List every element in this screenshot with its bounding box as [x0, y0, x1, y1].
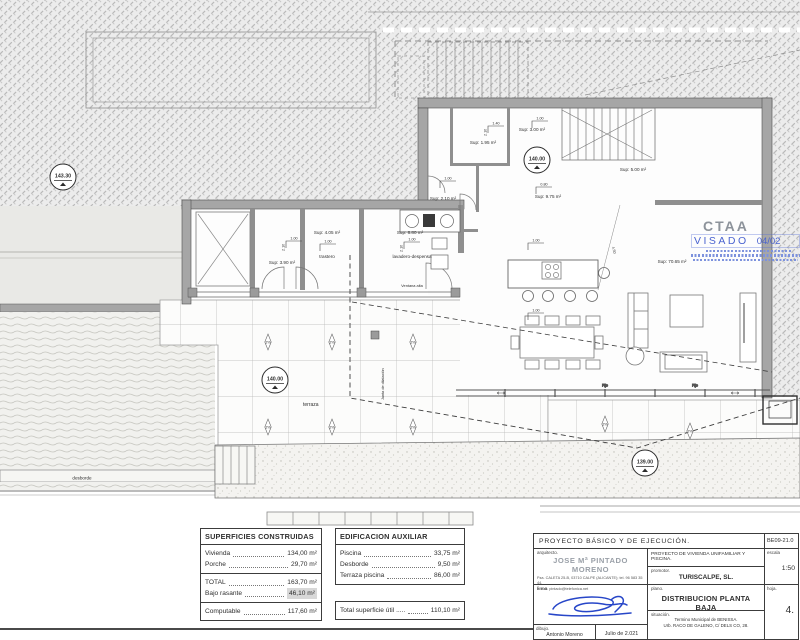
svg-text:1.40: 1.40 — [492, 122, 499, 126]
visado-date: 04/02 — [757, 236, 781, 247]
table-row: Bajo rasante 46,10 m² — [205, 588, 317, 599]
svg-text:Sup: 70.65 m²: Sup: 70.65 m² — [658, 259, 687, 264]
svg-text:1.00: 1.00 — [408, 238, 415, 242]
title-block: PROYECTO BÁSICO Y DE EJECUCIÓN. BE09-21.… — [533, 533, 799, 640]
stamp-microtext — [706, 250, 791, 252]
table-row: Porche 29,70 m² — [205, 559, 317, 570]
row-label: Porche — [205, 559, 226, 570]
visado-label: VISADO — [694, 235, 749, 247]
svg-text:140.00: 140.00 — [529, 157, 545, 163]
row-value: 117,60 m² — [288, 606, 317, 617]
svg-text:2%: 2% — [266, 425, 271, 429]
project-title-cell: PROYECTO DE VIVIENDA UNIFAMILIAR Y PISCI… — [648, 549, 765, 567]
auxiliar-rows: Piscina 33,75 m² Desborde 9,50 m² Terraz… — [336, 545, 464, 584]
row-label: Desborde — [340, 559, 369, 570]
developer-name: TURISCALPE, SL. — [651, 574, 761, 581]
row-value: 33,75 m² — [434, 548, 460, 559]
walkway-band — [215, 438, 800, 498]
drawing-sheet: desborde — [0, 0, 800, 640]
ventana-alta-label: Ventana alta — [401, 283, 423, 288]
sheet-frame-line — [0, 628, 536, 630]
row-value: 29,70 m² — [291, 559, 317, 570]
ctaa-visa-stamp: CTAA VISADO 04/02 — [691, 220, 800, 270]
developer-label: promotor. — [651, 568, 761, 573]
floor-plan: desborde — [0, 0, 800, 530]
svg-text:2%: 2% — [411, 425, 416, 429]
svg-text:139.00: 139.00 — [637, 460, 653, 466]
signature-label: firma. — [537, 586, 644, 591]
leader-dots — [408, 613, 428, 614]
row-label: Piscina — [340, 548, 361, 559]
svg-text:140.00: 140.00 — [267, 377, 283, 383]
signature — [541, 592, 641, 620]
level-marker-terrace: 140.00 — [262, 367, 288, 393]
level-marker-terrain: 143.30 — [50, 164, 76, 190]
superficies-table: SUPERFICIES CONSTRUIDAS Vivienda 134,00 … — [200, 528, 322, 621]
auxiliar-table: EDIFICACION AUXILIAR Piscina 33,75 m² De… — [335, 528, 465, 585]
superficies-title: SUPERFICIES CONSTRUIDAS — [201, 529, 321, 545]
desborde-label: desborde — [72, 476, 92, 481]
row-label: Total superficie útil ..... — [340, 605, 405, 616]
architect-name: JOSE Mª PINTADO MORENO — [537, 556, 644, 574]
svg-text:0.80: 0.80 — [540, 183, 547, 187]
location-line2: Urb. RACO DE GALENO, C/ DELS CO, 28. — [651, 623, 761, 629]
svg-text:Sup: 4.05 m²: Sup: 4.05 m² — [314, 230, 341, 235]
superficies-computable: Computable 117,60 m² — [201, 603, 321, 620]
svg-text:2.10: 2.10 — [282, 244, 286, 251]
svg-text:lavadero-despensa: lavadero-despensa — [392, 254, 432, 259]
svg-text:2%: 2% — [688, 429, 693, 433]
table-row: TOTAL 163,70 m² — [205, 577, 317, 588]
svg-text:1.00: 1.00 — [532, 309, 539, 313]
svg-text:terraza: terraza — [303, 402, 319, 408]
level-marker-floor: 140.00 — [524, 147, 550, 173]
stamp-microtext — [691, 254, 800, 256]
drawn-by-cell: dibujo. Antonio Moreno — [534, 625, 596, 640]
svg-text:143.30: 143.30 — [55, 174, 71, 180]
row-value: 110,10 m² — [431, 605, 460, 616]
svg-text:Sup: 8.80 m²: Sup: 8.80 m² — [397, 230, 424, 235]
svg-text:Sup: 3.90 m²: Sup: 3.90 m² — [269, 260, 296, 265]
row-label: Vivienda — [205, 548, 230, 559]
row-value: 86,00 m² — [434, 570, 460, 581]
signature-cell: firma. — [534, 585, 648, 625]
dining-set — [511, 316, 603, 369]
table-row: Piscina 33,75 m² — [340, 548, 460, 559]
leader-dots — [372, 567, 435, 568]
project-code: BE09-21.0 — [765, 534, 799, 549]
table-row: Desborde 9,50 m² — [340, 559, 460, 570]
table-row: Vivienda 134,00 m² — [205, 548, 317, 559]
svg-text:1.00: 1.00 — [324, 240, 331, 244]
svg-text:2%: 2% — [330, 340, 335, 344]
svg-text:2%: 2% — [603, 422, 608, 426]
leader-dots — [233, 556, 284, 557]
svg-text:1.00: 1.00 — [444, 177, 451, 181]
svg-text:Sup: 2.10 m²: Sup: 2.10 m² — [430, 196, 457, 201]
junta-label: Junta de dilatación — [381, 368, 385, 400]
sheet-number-label: hoja. — [767, 586, 797, 591]
row-value-highlight: 46,10 m² — [287, 588, 317, 599]
architect-label: arquitecto. — [537, 550, 644, 555]
sheet-title: DISTRIBUCION PLANTA BAJA — [651, 594, 761, 612]
row-label: TOTAL — [205, 577, 226, 588]
sheet-number-cell: hoja. 4. — [765, 585, 799, 640]
level-marker-path: 139.00 — [632, 450, 658, 476]
scale-value: 1:50 — [767, 565, 797, 572]
developer-cell: promotor. TURISCALPE, SL. — [648, 567, 765, 585]
leader-dots — [245, 596, 284, 597]
leader-dots — [364, 556, 431, 557]
sheet-title-label: plano. — [651, 586, 761, 591]
ctaa-org-label: CTAA — [691, 220, 800, 233]
svg-text:2.10: 2.10 — [484, 129, 488, 136]
drawn-by-label: dibujo. — [536, 626, 593, 631]
row-label: Bajo rasante — [205, 588, 242, 599]
row-value: 163,70 m² — [287, 577, 317, 588]
total-util-box: Total superficie útil ..... 110,10 m² — [335, 601, 465, 620]
svg-text:1.00: 1.00 — [532, 239, 539, 243]
row-value: 9,50 m² — [438, 559, 460, 570]
svg-text:Sup: 1.95 m²: Sup: 1.95 m² — [470, 140, 497, 145]
auxiliar-title: EDIFICACION AUXILIAR — [336, 529, 464, 545]
row-label: Computable — [205, 606, 241, 617]
row-value: 134,00 m² — [287, 548, 317, 559]
visado-row: VISADO 04/02 — [691, 234, 800, 248]
svg-text:2%: 2% — [411, 340, 416, 344]
scale-label: escala — [767, 550, 797, 555]
sheet-title-cell: plano. DISTRIBUCION PLANTA BAJA — [648, 585, 765, 611]
drawn-by-name: Antonio Moreno — [536, 632, 593, 638]
table-row: Terraza piscina 86,00 m² — [340, 570, 460, 581]
date-cell: Julio de 2.021 — [596, 625, 648, 640]
titleblock-header: PROYECTO BÁSICO Y DE EJECUCIÓN. — [534, 534, 765, 549]
svg-text:trastero: trastero — [319, 254, 335, 259]
leader-dots — [229, 567, 288, 568]
fijo-label: Fijo — [692, 384, 698, 388]
svg-text:2%: 2% — [266, 340, 271, 344]
leader-dots — [387, 578, 431, 579]
architect-address: Pza. CALETA 25-B, 03710 CALPE (ALICANTE)… — [537, 576, 644, 585]
location-cell: situación. Termino Municipal de BENISSA.… — [648, 611, 765, 640]
row-label: Terraza piscina — [340, 570, 384, 581]
svg-text:2%: 2% — [330, 425, 335, 429]
svg-text:Sup: 9.75 m²: Sup: 9.75 m² — [535, 194, 562, 199]
svg-text:1.00: 1.00 — [290, 237, 297, 241]
scale-cell: escala 1:50 — [765, 549, 799, 585]
leader-dots — [244, 614, 285, 615]
leader-dots — [229, 585, 285, 586]
architect-cell: arquitecto. JOSE Mª PINTADO MORENO Pza. … — [534, 549, 648, 585]
superficies-rows: Vivienda 134,00 m² Porche 29,70 m² — [201, 545, 321, 574]
stamp-microtext — [693, 259, 798, 261]
total-util-row: Total superficie útil ..... 110,10 m² — [336, 602, 464, 619]
superficies-totals: TOTAL 163,70 m² Bajo rasante 46,10 m² — [201, 574, 321, 603]
sheet-number: 4. — [767, 605, 797, 616]
fijo-label: Fijo — [602, 384, 608, 388]
svg-text:1.00: 1.00 — [536, 117, 543, 121]
side-path — [0, 206, 182, 307]
svg-text:Sup: 5.00 m²: Sup: 5.00 m² — [620, 167, 647, 172]
svg-text:2.10: 2.10 — [400, 245, 404, 252]
table-row: Computable 117,60 m² — [205, 606, 317, 617]
